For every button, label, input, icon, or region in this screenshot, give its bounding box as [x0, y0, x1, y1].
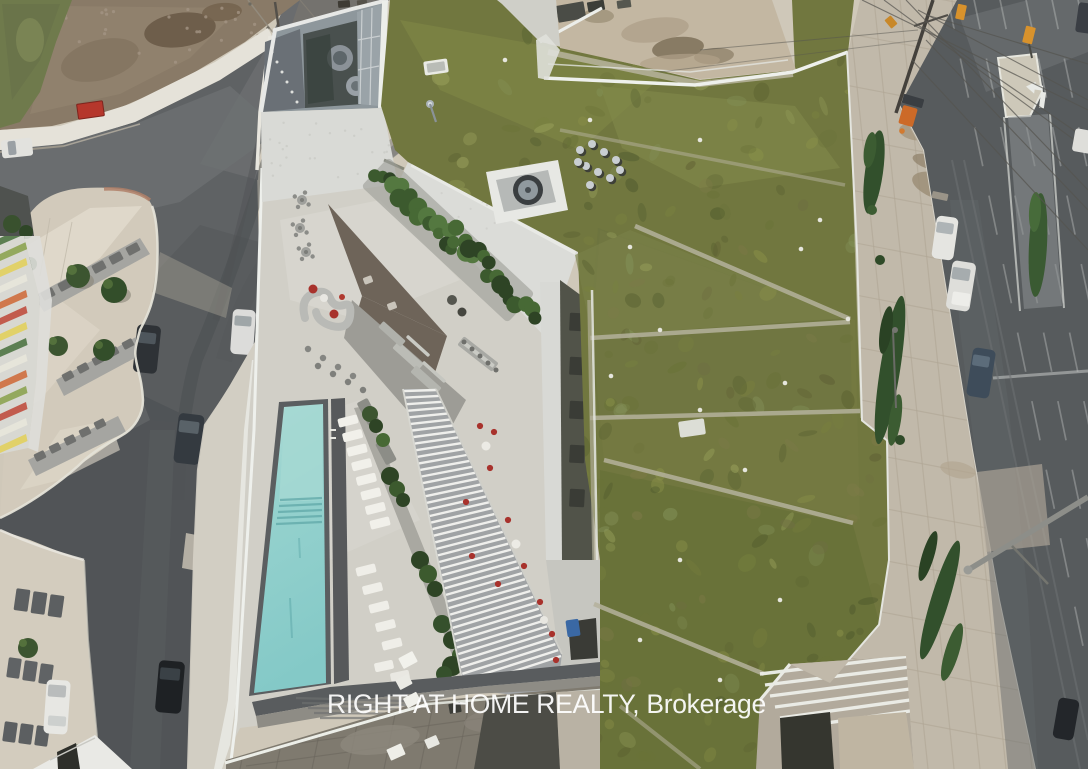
svg-text:RIGHT AT HOME REALTY, Brokerag: RIGHT AT HOME REALTY, Brokerage: [327, 689, 766, 719]
